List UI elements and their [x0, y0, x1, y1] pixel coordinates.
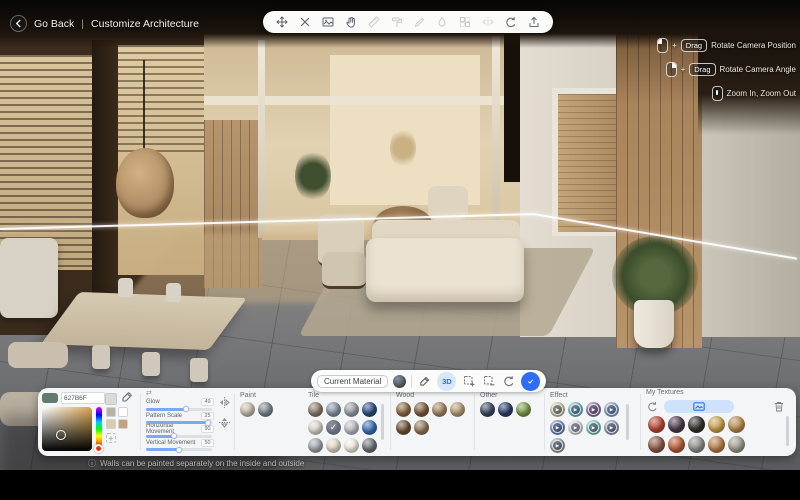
scene-pampas — [390, 128, 416, 168]
current-material-label: Current Material — [324, 377, 381, 386]
hex-color-input[interactable] — [61, 392, 105, 404]
panel-divider — [140, 394, 141, 450]
slider-row: Glow49 — [146, 398, 214, 411]
scene-small-plant — [295, 150, 331, 202]
flip-horizontal-button[interactable] — [218, 396, 231, 409]
eyedropper-tool-button[interactable] — [417, 374, 432, 389]
mode-3d-toggle[interactable]: 3D — [437, 372, 456, 391]
material-swatch[interactable] — [450, 402, 465, 417]
material-swatch[interactable] — [326, 402, 341, 417]
eyedropper-button[interactable] — [120, 391, 134, 405]
material-swatch[interactable] — [362, 438, 377, 453]
material-swatch[interactable]: ▶ — [586, 402, 601, 417]
scene-blinds-left2 — [118, 45, 204, 155]
material-swatch[interactable] — [344, 420, 359, 435]
material-swatch[interactable] — [728, 416, 745, 433]
undo-material-button[interactable] — [501, 374, 516, 389]
section-header: Effect — [550, 392, 568, 399]
slider-label: Pattern Scale — [146, 413, 182, 419]
my-textures-controls — [646, 400, 792, 414]
material-swatch[interactable] — [668, 436, 685, 453]
play-icon: ▶ — [552, 440, 563, 451]
scene-hanging-chair — [116, 148, 174, 218]
header: Go Back | Customize Architecture — [10, 15, 199, 32]
move-tool-button[interactable] — [274, 14, 290, 30]
section-header: Paint — [240, 392, 256, 399]
material-swatch[interactable] — [344, 402, 359, 417]
header-separator: | — [81, 18, 84, 30]
section-header: Wood — [396, 392, 414, 399]
play-icon: ▶ — [552, 422, 563, 433]
flip-controls — [218, 396, 231, 429]
image-upload-icon — [693, 402, 705, 411]
mode-3d-label: 3D — [442, 377, 452, 386]
material-swatch[interactable] — [414, 402, 429, 417]
horizontal-movement-slider[interactable] — [146, 435, 212, 438]
toolbar-divider — [411, 375, 412, 388]
panel-divider — [544, 394, 545, 450]
material-swatch[interactable]: ▶ — [586, 420, 601, 435]
effect-scrollbar[interactable] — [626, 404, 629, 440]
panel-divider — [474, 394, 475, 450]
section-wood: Wood — [396, 388, 468, 456]
add-color-button[interactable]: + — [106, 433, 116, 443]
my-textures-scrollbar[interactable] — [786, 416, 789, 446]
material-swatch[interactable] — [668, 416, 685, 433]
my-textures-grid — [648, 416, 748, 453]
tile-scrollbar[interactable] — [381, 404, 384, 440]
hint-rotate-angle: + Drag Rotate Camera Angle — [666, 62, 796, 77]
slider-label: Vertical Movement — [146, 440, 195, 446]
slider-value: 90 — [201, 425, 214, 433]
camera-hints: + Drag Rotate Camera Position + Drag Rot… — [657, 38, 796, 101]
play-icon: ▶ — [606, 422, 617, 433]
play-icon: ▶ — [552, 404, 563, 415]
material-swatch[interactable] — [362, 402, 377, 417]
swap-icon[interactable]: ⇄ — [146, 390, 214, 397]
scene-sofa — [366, 238, 524, 302]
paint-roller-tool-button[interactable] — [389, 14, 405, 30]
scene-daybed-left — [0, 238, 58, 318]
slider-row: Horizontal Movement90 — [146, 425, 214, 438]
quick-color-swatch[interactable] — [118, 407, 128, 417]
scene-dining-chair — [166, 283, 181, 302]
pattern-scale-slider[interactable] — [146, 421, 212, 424]
selected-check-icon: ✓ — [325, 419, 342, 436]
material-swatch[interactable] — [688, 416, 705, 433]
pattern-tool-button[interactable] — [457, 14, 473, 30]
chevron-left-icon — [14, 19, 23, 28]
material-swatch[interactable] — [432, 402, 447, 417]
section-my-textures: My Textures — [646, 388, 792, 456]
tile-swatch-grid: ✓ — [308, 402, 377, 453]
material-swatch[interactable]: ✓ — [326, 420, 341, 435]
material-swatch[interactable] — [396, 402, 411, 417]
check-icon — [527, 376, 534, 387]
footer-tooltip: ⓘ Walls can be painted separately on the… — [88, 458, 304, 469]
footer-tooltip-text: Walls can be painted separately on the i… — [100, 459, 304, 468]
back-label[interactable]: Go Back — [34, 18, 74, 30]
material-swatch[interactable]: ▶ — [604, 402, 619, 417]
section-header: My Textures — [646, 389, 684, 396]
glow-slider[interactable] — [146, 408, 212, 411]
scene-door — [558, 94, 620, 232]
hint-label: Rotate Camera Position — [711, 41, 796, 50]
paint-swatch-grid — [240, 402, 306, 417]
top-toolbar — [263, 11, 553, 33]
material-swatch[interactable] — [480, 402, 495, 417]
scene-stool — [8, 342, 68, 368]
material-swatch[interactable] — [498, 402, 513, 417]
play-icon: ▶ — [606, 404, 617, 415]
material-sliders: ⇄ Glow49 Pattern Scale25 Horizontal Move… — [146, 390, 214, 451]
scene-dining-chair — [142, 352, 160, 376]
undo-toolbar-button[interactable] — [503, 14, 519, 30]
brush-tool-button[interactable] — [411, 14, 427, 30]
delete-texture-button[interactable] — [772, 400, 785, 413]
fill-tool-button[interactable] — [434, 14, 450, 30]
hue-thumb[interactable] — [94, 444, 103, 453]
ruler-tool-button[interactable] — [366, 14, 382, 30]
hint-label: Zoom In, Zoom Out — [727, 89, 796, 98]
marquee-add-button[interactable] — [461, 374, 476, 389]
current-material-preview[interactable] — [393, 375, 406, 388]
scene-pillar-mid2 — [492, 36, 500, 238]
material-swatch[interactable] — [414, 420, 429, 435]
color-cursor[interactable] — [56, 430, 66, 440]
drag-badge: Drag — [681, 39, 707, 52]
material-swatch[interactable] — [396, 420, 411, 435]
material-swatch[interactable]: ▶ — [550, 402, 565, 417]
material-swatch[interactable] — [648, 416, 665, 433]
material-swatch[interactable] — [308, 402, 323, 417]
saturation-value-picker[interactable] — [42, 407, 92, 451]
export-button[interactable] — [526, 14, 542, 30]
back-button[interactable] — [10, 15, 27, 32]
quick-color-swatch[interactable] — [106, 419, 116, 429]
slider-label: Glow — [146, 399, 160, 405]
confirm-button[interactable] — [521, 372, 540, 391]
other-swatch-grid — [480, 402, 538, 417]
secondary-color-swatch[interactable] — [105, 393, 117, 405]
panel-divider — [640, 394, 641, 450]
quick-color-swatch[interactable] — [106, 407, 116, 417]
material-swatch[interactable]: ▶ — [604, 420, 619, 435]
material-swatch[interactable] — [708, 416, 725, 433]
panel-divider — [234, 394, 235, 450]
play-icon: ▶ — [588, 404, 599, 415]
letterbox-bottom — [0, 470, 800, 500]
color-picker: + — [42, 391, 138, 453]
material-swatch[interactable] — [308, 420, 323, 435]
upload-texture-button[interactable] — [664, 400, 734, 413]
drag-badge: Drag — [689, 63, 715, 76]
section-tile: Tile ✓ — [308, 388, 386, 456]
refresh-button[interactable] — [646, 400, 659, 413]
app-window: Go Back | Customize Architecture + Drag … — [0, 0, 800, 500]
play-icon: ▶ — [570, 404, 581, 415]
material-swatch[interactable] — [240, 402, 255, 417]
material-swatch[interactable] — [516, 402, 531, 417]
slider-row: Vertical Movement50 — [146, 439, 214, 452]
scene-pillar-mid1 — [258, 40, 265, 238]
wood-swatch-grid — [396, 402, 465, 435]
material-toolbar: Current Material 3D — [311, 370, 546, 392]
texture-tool-button[interactable] — [320, 14, 336, 30]
info-icon: ⓘ — [88, 458, 96, 469]
material-swatch[interactable] — [362, 420, 377, 435]
material-swatch[interactable]: ▶ — [550, 420, 565, 435]
vertical-movement-slider[interactable] — [146, 448, 212, 451]
material-swatch[interactable] — [344, 438, 359, 453]
material-panel: + ⇄ Glow49 Pattern Scale25 Horizontal Mo… — [38, 388, 796, 456]
section-header: Other — [480, 392, 498, 399]
material-swatch[interactable]: ▶ — [568, 402, 583, 417]
slider-value: 49 — [201, 398, 214, 406]
play-icon: ▶ — [588, 422, 599, 433]
hue-slider[interactable] — [96, 407, 102, 451]
quick-color-swatch[interactable] — [118, 419, 128, 429]
marquee-subtract-button[interactable] — [481, 374, 496, 389]
scene-dining-chair — [190, 358, 208, 382]
section-paint: Paint — [240, 388, 304, 456]
material-swatch[interactable] — [688, 436, 705, 453]
slider-value: 50 — [201, 439, 214, 447]
material-swatch[interactable] — [728, 436, 745, 453]
play-icon: ▶ — [570, 422, 581, 433]
material-swatch[interactable] — [308, 438, 323, 453]
current-material-chip[interactable]: Current Material — [317, 375, 388, 388]
material-swatch[interactable] — [326, 438, 341, 453]
mouse-scroll-wheel-icon — [712, 86, 723, 101]
quick-swatches — [106, 407, 130, 429]
plus-icon: + — [109, 434, 114, 443]
flip-vertical-button[interactable] — [218, 416, 231, 429]
hint-rotate-position: + Drag Rotate Camera Position — [657, 38, 796, 53]
plus-sign: + — [672, 41, 677, 50]
scene-armchair — [322, 252, 366, 289]
section-effect: Effect ▶▶▶▶▶▶▶▶▶ — [550, 388, 636, 456]
delete-tool-button[interactable] — [297, 14, 313, 30]
mouse-left-button-icon — [657, 38, 668, 53]
section-other: Other — [480, 388, 540, 456]
material-swatch[interactable] — [708, 436, 725, 453]
scene-pillar-left — [92, 40, 118, 295]
current-color-swatch[interactable] — [42, 393, 58, 403]
material-swatch[interactable] — [648, 436, 665, 453]
hint-zoom: Zoom In, Zoom Out — [712, 86, 796, 101]
mirror-tool-button[interactable] — [480, 14, 496, 30]
scene-porch-beam — [204, 96, 534, 105]
panel-divider — [390, 394, 391, 450]
mouse-right-button-icon — [666, 62, 677, 77]
page-title: Customize Architecture — [91, 18, 199, 30]
hint-label: Rotate Camera Angle — [720, 65, 797, 74]
material-swatch[interactable] — [258, 402, 273, 417]
scene-dining-chair — [92, 345, 110, 369]
pan-tool-button[interactable] — [343, 14, 359, 30]
scene-plant-pot — [634, 300, 674, 348]
slider-value: 25 — [201, 412, 214, 420]
plus-sign: + — [681, 65, 686, 74]
scene-hanging-chair-cord — [143, 60, 145, 155]
effect-swatch-grid: ▶▶▶▶▶▶▶▶▶ — [550, 402, 619, 453]
material-swatch[interactable]: ▶ — [568, 420, 583, 435]
section-header: Tile — [308, 392, 319, 399]
material-swatch[interactable]: ▶ — [550, 438, 565, 453]
scene-dining-chair — [118, 278, 133, 297]
slider-row: Pattern Scale25 — [146, 412, 214, 425]
